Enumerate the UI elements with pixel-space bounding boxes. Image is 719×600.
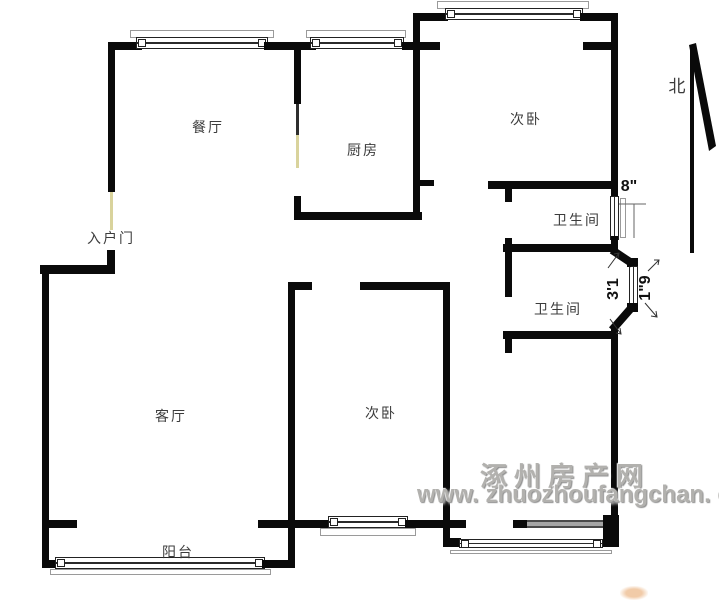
room-label-dining: 餐厅 (178, 117, 238, 137)
wall-br-corner-block (603, 515, 619, 547)
wall-dining-left (108, 42, 115, 192)
watermark-site-url: www. zhuozhoufangchan. com (417, 481, 717, 509)
logo-fragment (620, 586, 648, 600)
window-sill-br-outer (450, 550, 612, 554)
kitchen-door-frame (296, 104, 299, 135)
wall-dining-kitchen-top (264, 42, 316, 50)
window-br-inner (527, 520, 605, 528)
wall-right-mid-block (611, 236, 618, 252)
wall-bath-lower-bottom (503, 331, 618, 339)
window-sill-bath-upper (620, 198, 626, 238)
wall-bedroom-south-top-right (360, 282, 450, 290)
window-sill-balcony (50, 569, 271, 575)
kitchen-door-leaf (296, 135, 299, 168)
window-bedroom-south (328, 516, 408, 528)
wall-bath-lower-stub-down (505, 338, 512, 353)
north-arrow-icon (689, 43, 716, 253)
wall-bedroom-south-bottom-left (258, 520, 332, 528)
dim-bath-window: 8" (614, 177, 644, 197)
window-kitchen (310, 37, 404, 49)
room-label-bedroom-south: 次卧 (351, 403, 411, 423)
wall-bath-lower-left (505, 250, 512, 297)
window-sill-bedroom-south (320, 528, 416, 536)
room-label-bathroom-upper: 卫生间 (537, 210, 617, 230)
wall-bedroom-south-bottom-right (405, 520, 466, 528)
room-label-bedroom-north: 次卧 (496, 109, 556, 129)
wall-balcony-left-stub (45, 520, 77, 528)
wall-right-lower (611, 325, 618, 547)
dim-bay-window: 1"9 (627, 268, 665, 308)
wall-balcony-corner-right (262, 560, 295, 568)
wall-kitchen-bedroom-shared (413, 13, 420, 215)
wall-kitchen-top-right (402, 42, 440, 50)
compass-north-label: 北 (666, 72, 690, 97)
room-label-living: 客厅 (141, 406, 201, 426)
wall-kitchen-bottom (294, 212, 422, 220)
entry-door-leaf (110, 192, 113, 230)
wall-bath-upper-door-stub-top (505, 188, 512, 202)
window-bedroom-north (445, 8, 583, 20)
wall-kitchen-left (294, 42, 301, 104)
floorplan-canvas: 餐厅 厨房 次卧 卫生间 卫生间 入户门 客厅 次卧 阳台 北 8" 3'1 1… (0, 0, 719, 600)
room-label-bathroom-lower: 卫生间 (518, 299, 598, 319)
room-label-balcony: 阳台 (148, 542, 208, 562)
window-dining (136, 37, 268, 49)
wall-stub-corridor (420, 180, 434, 186)
wall-entry-horizontal (40, 265, 115, 274)
wall-right-upper (611, 13, 618, 198)
window-br-outer (459, 539, 603, 548)
room-label-kitchen: 厨房 (333, 140, 393, 160)
wall-bath-upper-bottom (503, 244, 617, 252)
room-label-entry: 入户门 (71, 228, 151, 248)
